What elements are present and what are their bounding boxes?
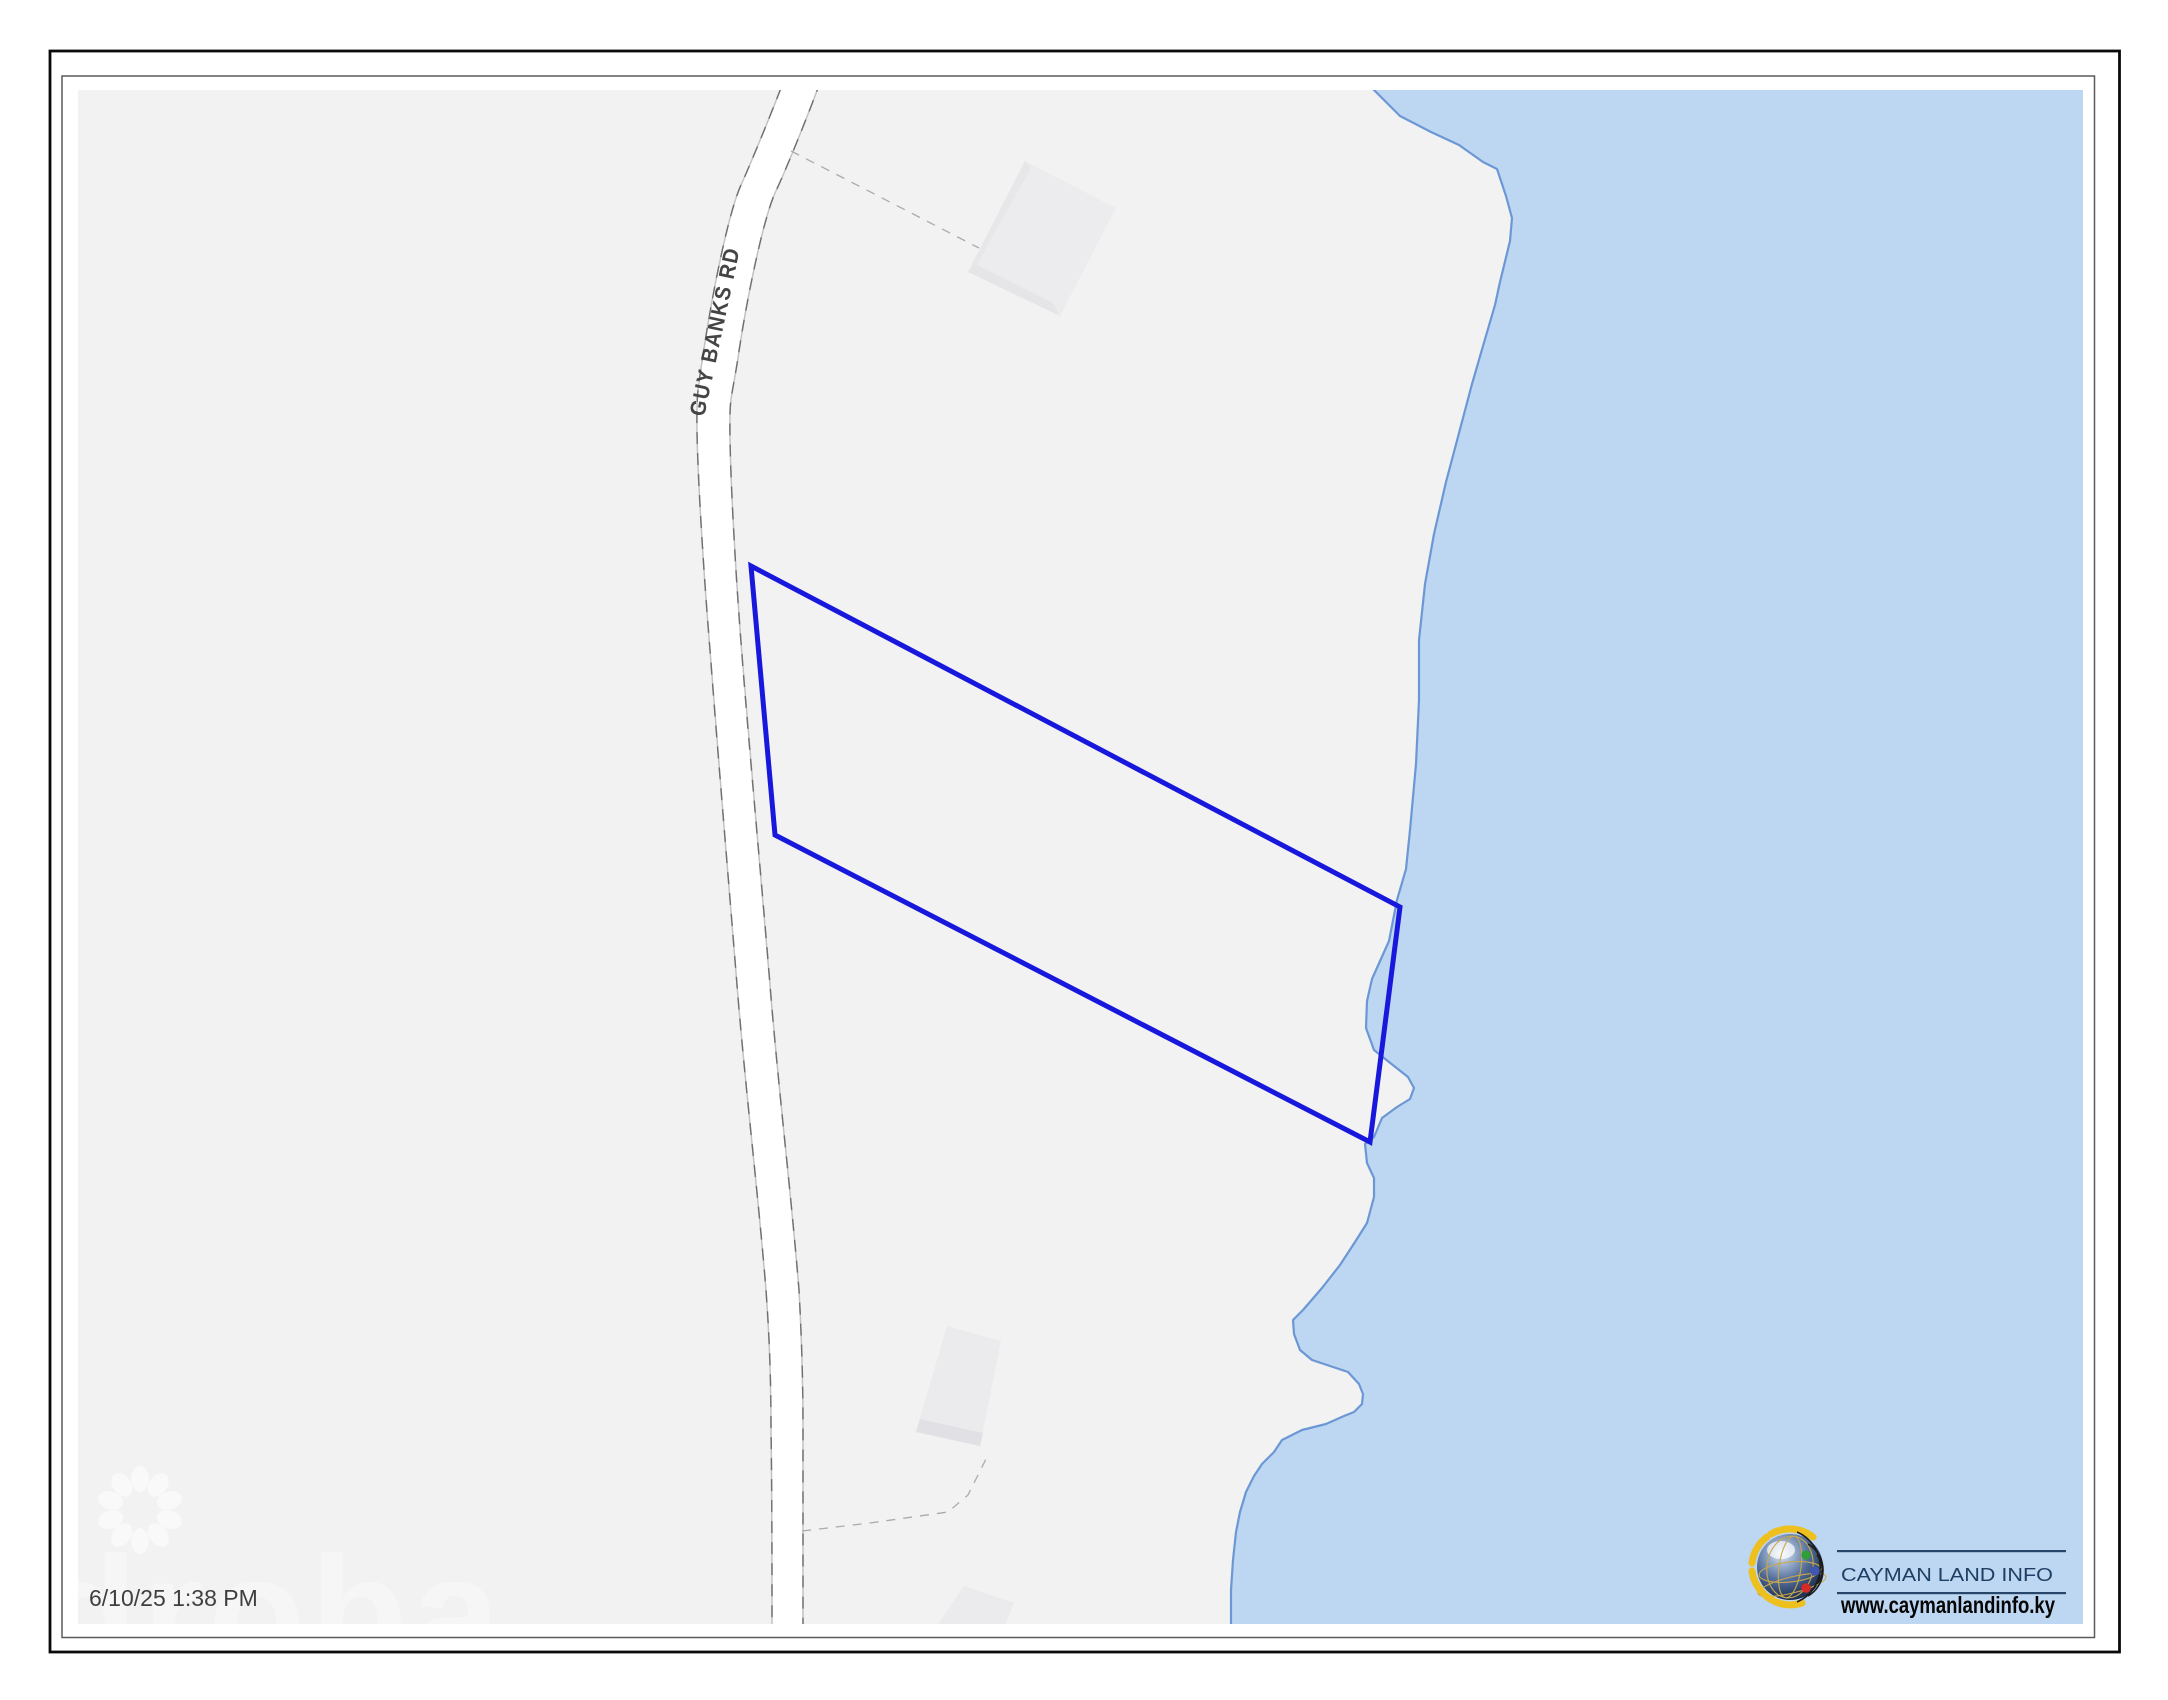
svg-text:CAYMAN LAND INFO: CAYMAN LAND INFO: [1841, 1564, 2053, 1585]
svg-text:6/10/25 1:38 PM: 6/10/25 1:38 PM: [89, 1585, 258, 1611]
svg-text:www.caymanlandinfo.ky: www.caymanlandinfo.ky: [1840, 1592, 2055, 1618]
